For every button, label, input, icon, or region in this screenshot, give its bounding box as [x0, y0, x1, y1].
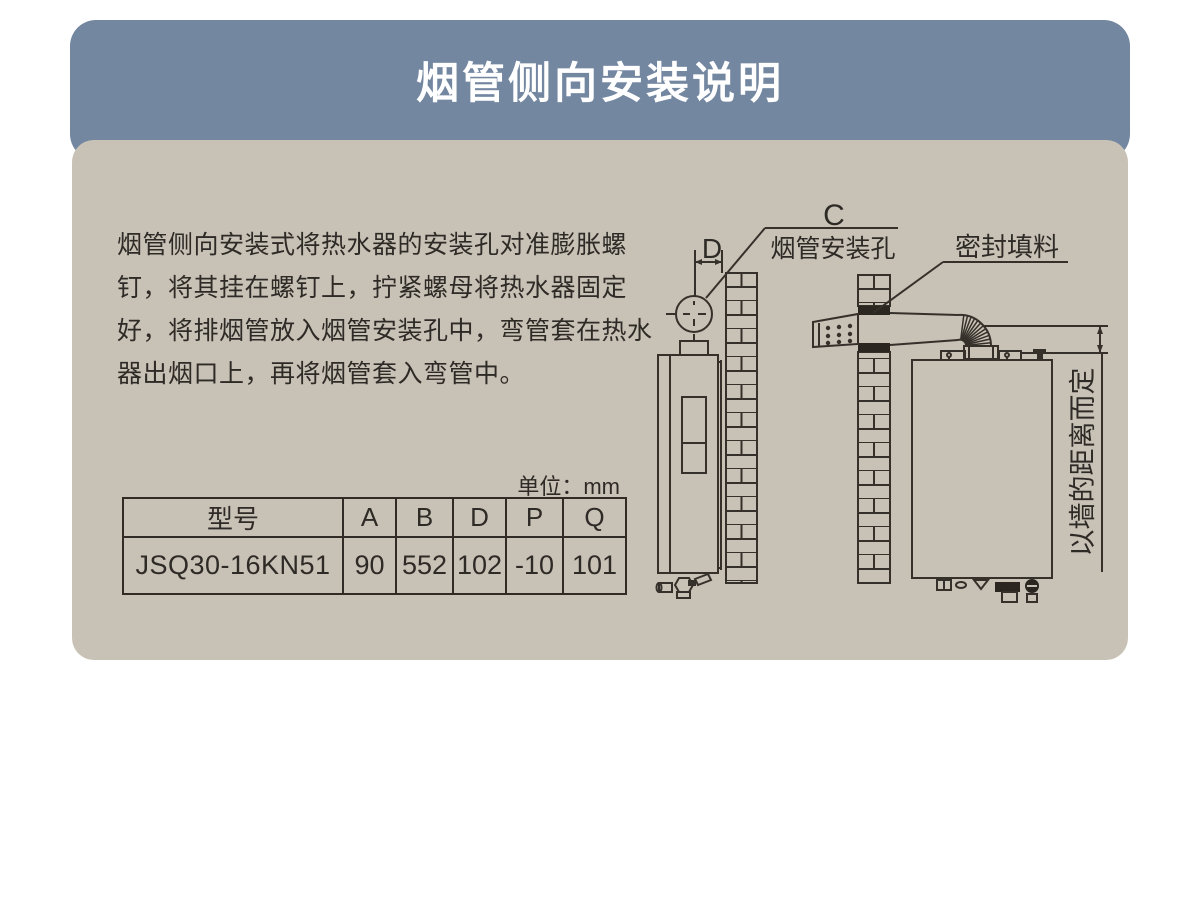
page-title: 烟管侧向安装说明	[70, 20, 1130, 140]
flue-hole-circle	[666, 296, 712, 341]
cell-p: -10	[506, 537, 563, 594]
spec-table: 型号 A B D P Q JSQ30-16KN51 90 552 102 -10…	[122, 497, 627, 595]
cell-b: 552	[396, 537, 453, 594]
brick-wall-front	[858, 275, 890, 583]
dim-d-label: D	[702, 233, 722, 264]
water-heater-front-view	[912, 349, 1052, 602]
cell-q: 101	[563, 537, 626, 594]
seal-block-top	[858, 306, 890, 315]
brick-wall-side	[726, 273, 757, 583]
col-header-p: P	[506, 498, 563, 537]
installation-instructions: 烟管侧向安装式将热水器的安装孔对准膨胀螺钉，将其挂在螺钉上，拧紧螺母将热水器固定…	[117, 224, 669, 396]
col-header-model: 型号	[123, 498, 343, 537]
seal-block-bottom	[858, 343, 890, 352]
bottom-fittings	[937, 579, 1039, 602]
spec-table-data-row: JSQ30-16KN51 90 552 102 -10 101	[123, 537, 626, 594]
top-right-fitting	[1033, 349, 1046, 360]
cell-a: 90	[343, 537, 396, 594]
col-header-d: D	[453, 498, 506, 537]
seal-label: 密封填料	[955, 232, 1059, 262]
manual-page: 烟管侧向安装说明 烟管侧向安装式将热水器的安装孔对准膨胀螺钉，将其挂在螺钉上，拧…	[0, 0, 1200, 904]
front-view-diagram: 密封填料 以墙的距离而定	[808, 218, 1120, 618]
flue-pipe	[813, 313, 958, 347]
cell-d: 102	[453, 537, 506, 594]
col-header-b: B	[396, 498, 453, 537]
bottom-valves	[657, 574, 712, 598]
col-header-q: Q	[563, 498, 626, 537]
spec-table-header-row: 型号 A B D P Q	[123, 498, 626, 537]
water-heater-side-view	[658, 341, 721, 573]
wall-distance-label: 以墙的距离而定	[1068, 368, 1098, 557]
col-header-a: A	[343, 498, 396, 537]
cell-model: JSQ30-16KN51	[123, 537, 343, 594]
flue-pipe-perforations	[826, 324, 852, 345]
